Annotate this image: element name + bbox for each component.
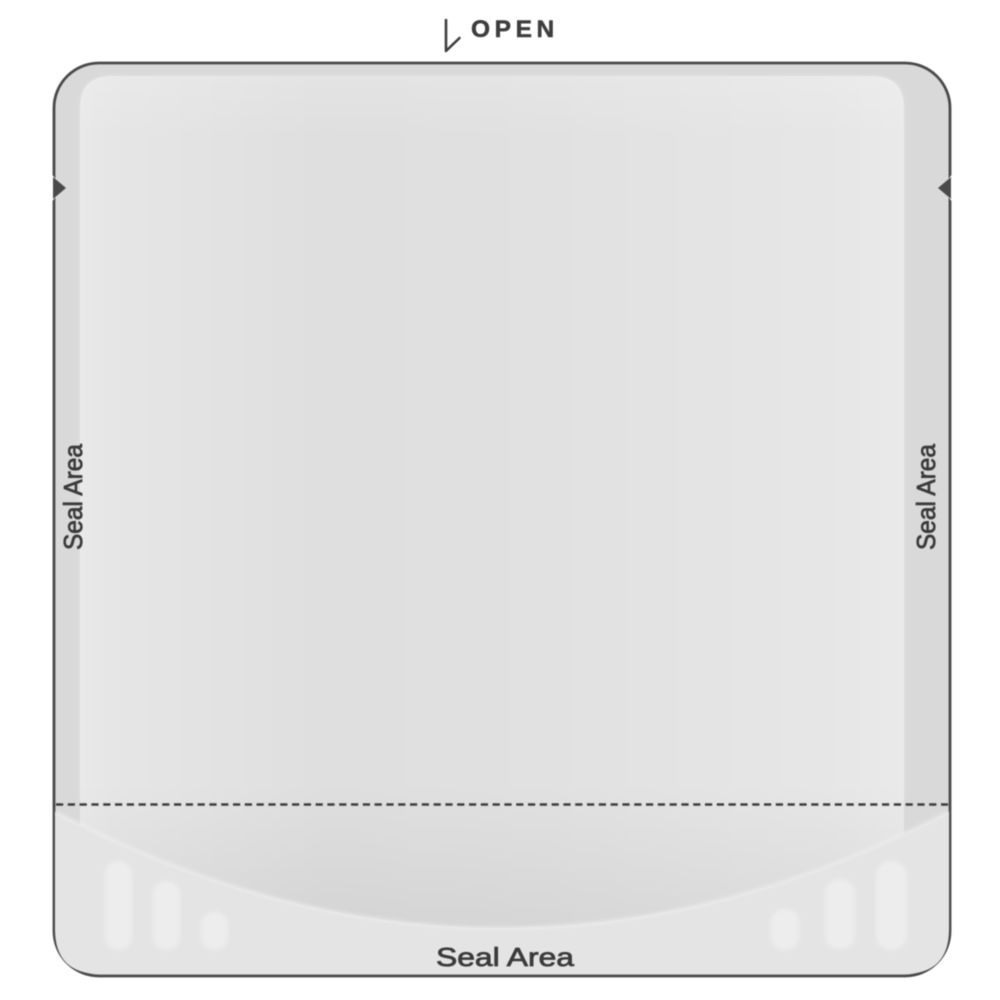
svg-text:Seal Area: Seal Area <box>436 942 575 972</box>
svg-text:OPEN: OPEN <box>471 16 559 43</box>
svg-text:Seal Area: Seal Area <box>58 443 88 550</box>
svg-text:Seal Area: Seal Area <box>911 443 941 550</box>
